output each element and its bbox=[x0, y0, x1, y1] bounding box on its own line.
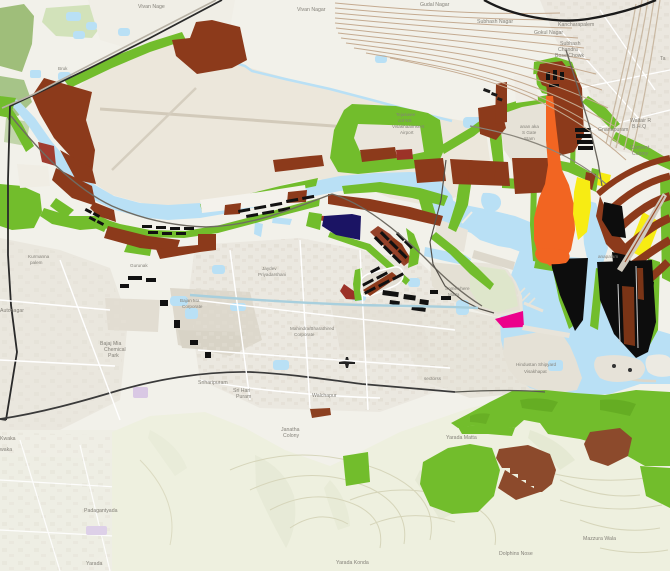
svg-text:Padagantyada: Padagantyada bbox=[84, 508, 118, 514]
svg-text:Mahindra/Bharathired: Mahindra/Bharathired bbox=[290, 326, 335, 331]
svg-text:Dolphins Nose: Dolphins Nose bbox=[499, 551, 533, 557]
svg-text:Mazzura Wala: Mazzura Wala bbox=[583, 536, 616, 542]
svg-text:anan aka: anan aka bbox=[520, 124, 539, 129]
svg-text:Park: Park bbox=[108, 353, 119, 359]
svg-text:Yarada Matta: Yarada Matta bbox=[446, 435, 477, 441]
svg-text:Bajan Ma: Bajan Ma bbox=[180, 298, 200, 303]
svg-text:Matta: Matta bbox=[448, 292, 460, 297]
svg-text:Visakhaaimsent: Visakhaaimsent bbox=[392, 124, 425, 129]
svg-text:Kancharapalem: Kancharapalem bbox=[558, 22, 594, 28]
svg-text:Gokul Nagar: Gokul Nagar bbox=[534, 30, 563, 36]
svg-text:col NS: col NS bbox=[398, 118, 412, 123]
svg-text:Visakhapat: Visakhapat bbox=[524, 369, 547, 374]
svg-text:Bose Chowk: Bose Chowk bbox=[555, 53, 585, 59]
svg-text:Colony: Colony bbox=[632, 151, 649, 157]
svg-text:Tejaswee: Tejaswee bbox=[396, 112, 416, 117]
svg-text:Gurunak: Gurunak bbox=[130, 263, 148, 268]
svg-text:Hindustan Shipyard: Hindustan Shipyard bbox=[516, 362, 557, 367]
svg-text:Yarada Konda: Yarada Konda bbox=[336, 560, 369, 566]
svg-text:Subhash Nagar: Subhash Nagar bbox=[477, 19, 513, 25]
svg-text:Colony: Colony bbox=[283, 433, 300, 439]
svg-text:Somewhere: Somewhere bbox=[445, 286, 470, 291]
svg-text:waka: waka bbox=[0, 447, 12, 453]
svg-text:Priyadarshani: Priyadarshani bbox=[258, 272, 286, 277]
svg-text:B.H.Q: B.H.Q bbox=[632, 124, 646, 130]
svg-text:palem: palem bbox=[30, 260, 43, 265]
svg-text:Kwaka: Kwaka bbox=[0, 436, 16, 442]
svg-text:Autonagar: Autonagar bbox=[0, 308, 24, 314]
svg-text:Vivan Nagar: Vivan Nagar bbox=[297, 7, 326, 13]
svg-text:Bruk: Bruk bbox=[58, 66, 68, 71]
svg-text:Sriharipuram: Sriharipuram bbox=[198, 380, 228, 386]
svg-text:sectorss: sectorss bbox=[424, 376, 442, 381]
svg-text:Puram: Puram bbox=[236, 394, 251, 400]
svg-text:S Gate: S Gate bbox=[522, 130, 537, 135]
svg-text:Jaydev: Jaydev bbox=[262, 266, 277, 271]
svg-text:Corporate: Corporate bbox=[294, 332, 315, 337]
svg-text:Gudal Nagar: Gudal Nagar bbox=[420, 2, 450, 8]
svg-text:Vivan Nage: Vivan Nage bbox=[138, 4, 165, 10]
svg-text:Airport: Airport bbox=[400, 130, 414, 135]
svg-text:Corporate: Corporate bbox=[182, 304, 203, 309]
svg-text:Walchapur: Walchapur bbox=[312, 393, 337, 399]
svg-text:anapalam: anapalam bbox=[598, 254, 618, 259]
svg-text:Kurmanna: Kurmanna bbox=[28, 254, 50, 259]
svg-text:Ta: Ta bbox=[660, 56, 666, 62]
svg-text:Yarada: Yarada bbox=[86, 561, 102, 567]
svg-text:Stam: Stam bbox=[524, 136, 535, 141]
svg-text:Gnanapuram: Gnanapuram bbox=[598, 127, 628, 133]
